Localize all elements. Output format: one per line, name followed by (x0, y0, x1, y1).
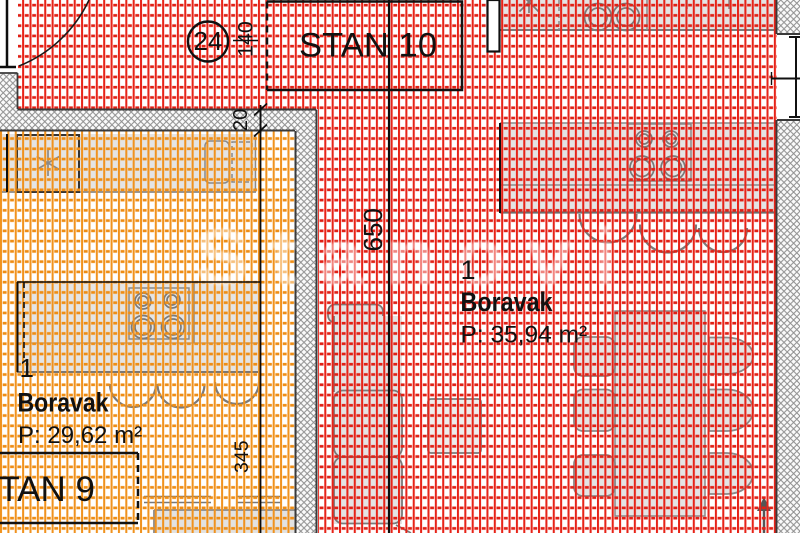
svg-text:24: 24 (194, 26, 223, 56)
svg-text:P: 35,94 m²: P: 35,94 m² (461, 322, 588, 349)
svg-text:Boravak: Boravak (18, 388, 110, 418)
svg-text:STAN 9: STAN 9 (0, 470, 95, 509)
svg-text:Boravak: Boravak (461, 287, 554, 317)
svg-text:1: 1 (20, 353, 34, 383)
svg-text:140: 140 (234, 21, 258, 57)
svg-text:20: 20 (230, 109, 252, 131)
svg-text:1: 1 (461, 255, 476, 285)
svg-text:345: 345 (231, 440, 253, 473)
svg-text:STAN 10: STAN 10 (299, 27, 437, 65)
svg-text:P: 29,62 m²: P: 29,62 m² (18, 422, 142, 449)
svg-text:Stanovi: Stanovi (195, 212, 638, 301)
svg-text:650: 650 (358, 208, 388, 251)
